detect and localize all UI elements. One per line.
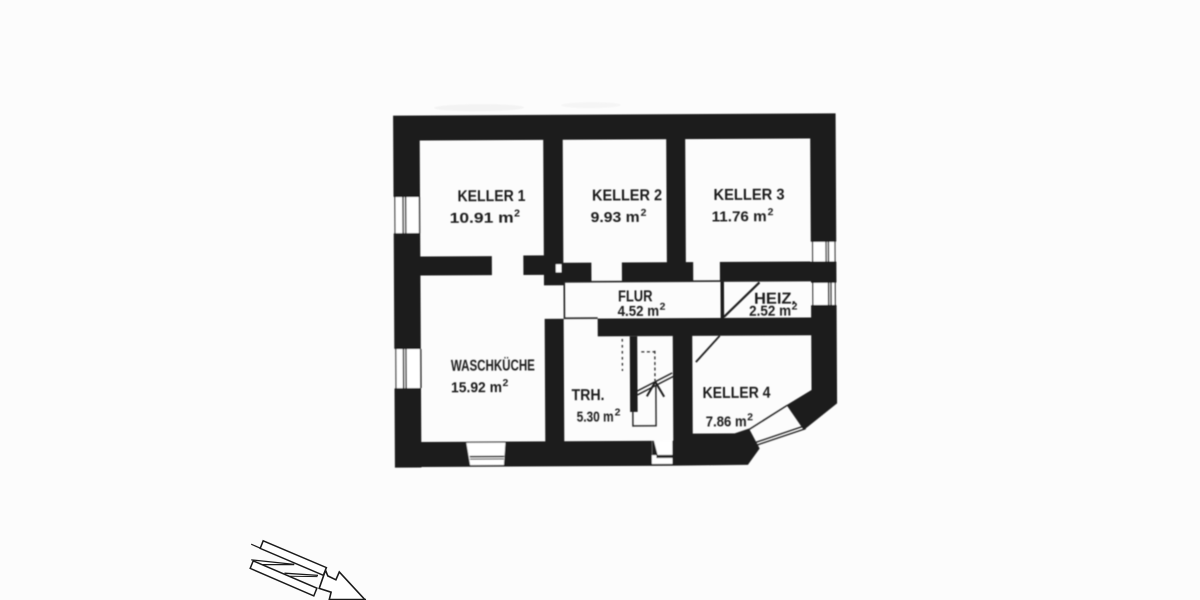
svg-text:2: 2 [768,206,774,218]
svg-text:10.91 m: 10.91 m [450,210,514,227]
svg-text:2: 2 [660,301,666,313]
svg-text:11.76 m: 11.76 m [712,208,767,225]
svg-text:KELLER 4: KELLER 4 [702,385,770,402]
svg-text:KELLER 1: KELLER 1 [457,188,525,205]
svg-text:TRH.: TRH. [572,387,605,404]
svg-text:15.92 m: 15.92 m [451,379,502,396]
svg-text:WASCHKÜCHE: WASCHKÜCHE [451,357,535,374]
svg-text:KELLER 2: KELLER 2 [592,187,662,204]
svg-text:2: 2 [502,377,508,389]
svg-text:4.52 m: 4.52 m [618,303,660,320]
svg-text:2: 2 [514,207,520,219]
svg-text:7.86 m: 7.86 m [706,413,747,430]
svg-text:KELLER 3: KELLER 3 [713,187,784,204]
svg-text:2: 2 [747,411,753,423]
svg-text:2.52 m: 2.52 m [749,303,791,320]
svg-text:5.30 m: 5.30 m [577,409,614,426]
svg-text:2: 2 [641,207,647,219]
svg-text:2: 2 [615,406,621,418]
svg-text:9.93 m: 9.93 m [591,209,640,226]
svg-text:2: 2 [792,301,798,313]
